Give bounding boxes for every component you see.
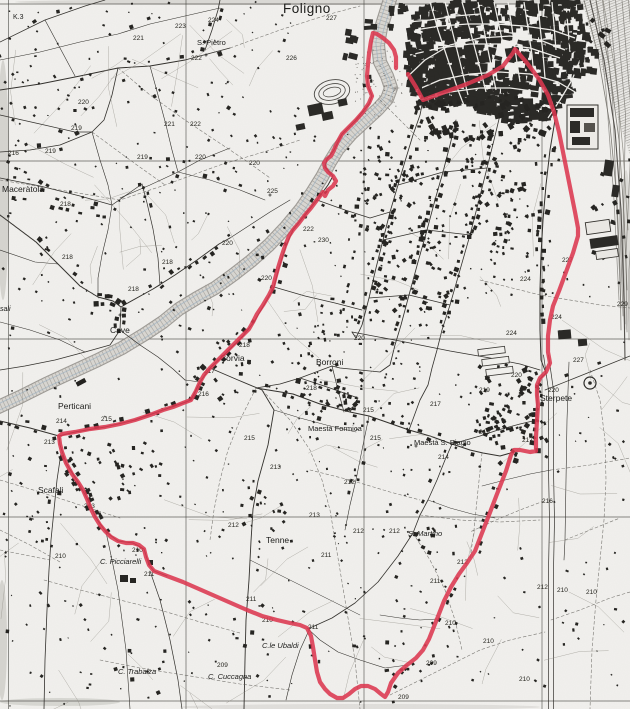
svg-text:219: 219 xyxy=(137,154,148,161)
svg-text:212: 212 xyxy=(537,584,548,591)
svg-text:219: 219 xyxy=(479,387,490,394)
svg-text:209: 209 xyxy=(426,660,437,667)
svg-text:216: 216 xyxy=(8,150,19,157)
svg-text:Cave: Cave xyxy=(110,325,130,335)
svg-text:220: 220 xyxy=(222,240,233,247)
svg-text:224: 224 xyxy=(208,17,219,24)
svg-text:213: 213 xyxy=(309,512,320,519)
svg-text:214: 214 xyxy=(438,454,449,461)
svg-text:210: 210 xyxy=(586,589,597,596)
svg-text:209: 209 xyxy=(217,662,228,669)
svg-text:222: 222 xyxy=(191,55,202,62)
svg-text:218: 218 xyxy=(62,254,73,261)
svg-text:210: 210 xyxy=(483,638,494,645)
svg-text:217: 217 xyxy=(522,437,533,444)
svg-text:215: 215 xyxy=(101,416,112,423)
svg-text:219: 219 xyxy=(479,429,490,436)
svg-text:225: 225 xyxy=(267,188,278,195)
svg-text:215: 215 xyxy=(370,435,381,442)
svg-text:C. Cuccagna: C. Cuccagna xyxy=(208,672,251,681)
svg-text:223: 223 xyxy=(175,23,186,30)
svg-text:219: 219 xyxy=(71,125,82,132)
svg-text:213: 213 xyxy=(270,464,281,471)
svg-text:212: 212 xyxy=(353,528,364,535)
svg-text:216: 216 xyxy=(542,498,553,505)
svg-text:C. Trabalza: C. Trabalza xyxy=(118,667,156,676)
svg-text:S. Martino: S. Martino xyxy=(408,529,442,538)
svg-text:Borroni: Borroni xyxy=(316,357,344,367)
svg-text:sali: sali xyxy=(0,306,11,313)
svg-text:210: 210 xyxy=(55,553,66,560)
svg-text:218: 218 xyxy=(306,385,317,392)
svg-text:Maestà Formica: Maestà Formica xyxy=(308,424,363,433)
svg-text:215: 215 xyxy=(363,407,374,414)
svg-text:220: 220 xyxy=(249,160,260,167)
svg-text:216: 216 xyxy=(198,391,209,398)
svg-text:210: 210 xyxy=(557,587,568,594)
svg-text:212: 212 xyxy=(344,479,355,486)
svg-text:220: 220 xyxy=(261,275,272,282)
svg-text:217: 217 xyxy=(430,401,441,408)
svg-text:218: 218 xyxy=(60,201,71,208)
svg-text:212: 212 xyxy=(389,528,400,535)
svg-text:214: 214 xyxy=(56,418,67,425)
svg-text:218: 218 xyxy=(239,342,250,349)
svg-text:213: 213 xyxy=(44,439,55,446)
svg-text:Scafali: Scafali xyxy=(38,485,64,495)
svg-text:221: 221 xyxy=(164,121,175,128)
svg-text:222: 222 xyxy=(190,121,201,128)
svg-text:227: 227 xyxy=(326,15,337,22)
svg-text:221: 221 xyxy=(133,35,144,42)
svg-text:222: 222 xyxy=(303,226,314,233)
svg-text:220: 220 xyxy=(354,335,365,342)
svg-text:211: 211 xyxy=(246,596,257,603)
svg-text:Maceràtola: Maceràtola xyxy=(2,184,44,194)
svg-text:219: 219 xyxy=(45,148,56,155)
svg-text:210: 210 xyxy=(445,620,456,627)
svg-text:211: 211 xyxy=(430,578,441,585)
svg-text:Maestà S. Biagio: Maestà S. Biagio xyxy=(414,438,471,447)
svg-text:226: 226 xyxy=(286,55,297,62)
svg-text:229: 229 xyxy=(617,301,628,308)
svg-text:210: 210 xyxy=(519,676,530,683)
svg-text:C.le Ubaldi: C.le Ubaldi xyxy=(262,641,299,650)
svg-text:215: 215 xyxy=(244,435,255,442)
svg-text:209: 209 xyxy=(398,694,409,701)
svg-text:224: 224 xyxy=(506,330,517,337)
svg-text:220: 220 xyxy=(511,372,522,379)
svg-text:212: 212 xyxy=(228,522,239,529)
svg-text:C. Picciarelli: C. Picciarelli xyxy=(100,557,142,566)
svg-text:Tenne: Tenne xyxy=(266,535,289,545)
svg-text:220: 220 xyxy=(78,99,89,106)
svg-text:230: 230 xyxy=(318,237,329,244)
svg-text:K.3: K.3 xyxy=(13,14,24,21)
svg-text:218: 218 xyxy=(128,286,139,293)
svg-text:220: 220 xyxy=(548,387,559,394)
svg-text:Foligno: Foligno xyxy=(283,1,331,16)
svg-text:Sterpete: Sterpete xyxy=(540,393,572,403)
svg-text:S. Pietro: S. Pietro xyxy=(197,38,226,47)
svg-text:218: 218 xyxy=(162,259,173,266)
svg-text:220: 220 xyxy=(195,154,206,161)
svg-text:211: 211 xyxy=(321,552,332,559)
svg-text:224: 224 xyxy=(520,276,531,283)
svg-text:227: 227 xyxy=(573,357,584,364)
svg-text:Perticani: Perticani xyxy=(58,401,91,411)
